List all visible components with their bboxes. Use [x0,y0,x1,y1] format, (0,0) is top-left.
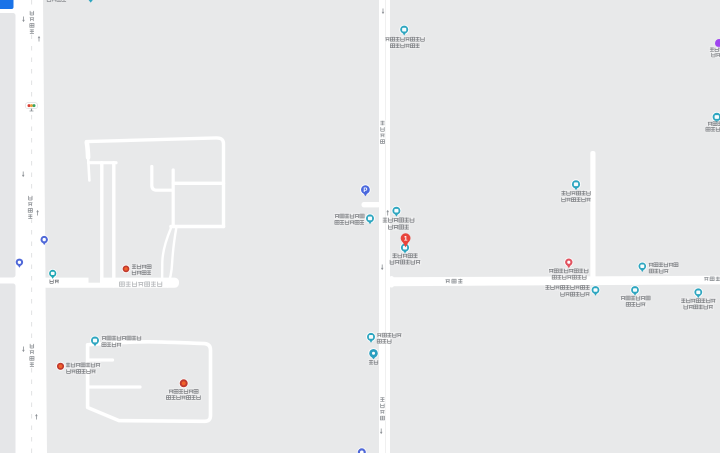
svg-text:P: P [363,188,367,194]
svg-text:1: 1 [404,236,408,243]
